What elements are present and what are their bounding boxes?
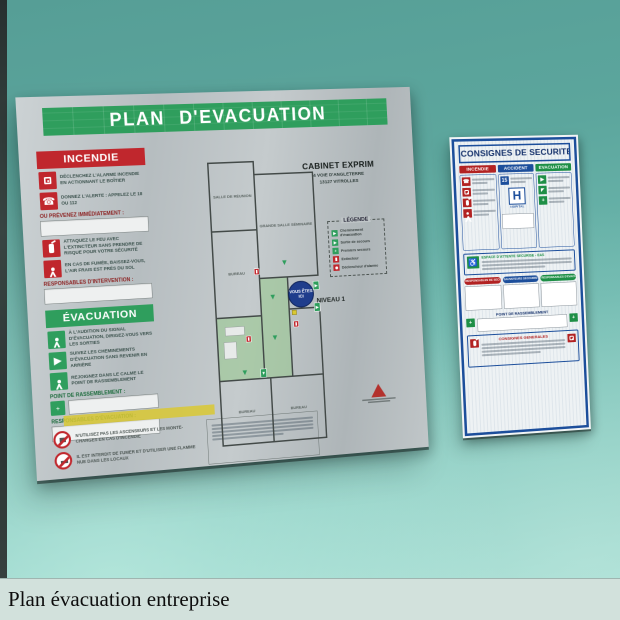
samu-15-icon: 15	[500, 176, 509, 185]
pill-sauveteurs-secouristes: SAUVETEURS SECOURISTES	[503, 275, 539, 283]
exit-sign-icon: ▼	[260, 368, 267, 377]
assembly-walk-icon	[50, 372, 69, 391]
extinguisher-marker-icon	[246, 336, 252, 343]
extinguisher-icon	[463, 198, 472, 207]
column-accident-header: ACCIDENT	[498, 164, 534, 172]
assembly-icon: +	[539, 196, 548, 205]
column-incendie-header: INCENDIE	[459, 165, 496, 173]
building-identity: CABINET EXPRIM 4 VOIE D'ANGLETERRE 13127…	[290, 159, 387, 186]
wheelchair-icon: ♿	[467, 256, 480, 269]
consignes-title: CONSIGNES DE SECURITE	[458, 143, 571, 164]
legend-row: ▶ Sortie de secours	[332, 237, 382, 246]
pill-blank-box	[541, 281, 577, 307]
room-secretariat	[288, 306, 324, 377]
evacuate-icon	[463, 209, 472, 218]
pill-responsables-evacuation: RESPONSABLES D'EVACUATION	[540, 274, 576, 282]
consignes-generales-box: CONSIGNES GENERALES	[467, 329, 580, 367]
photo-scene: PLAN D'EVACUATION INCENDIE DÉCLENCHEZ L'…	[0, 0, 620, 620]
legend-box: LÉGENDE ▶ Cheminement d'évacuation ▶ Sor…	[327, 218, 387, 277]
accident-blank-box	[502, 213, 535, 229]
furniture-desk	[224, 342, 238, 360]
evac-arrow-icon: ▼	[241, 369, 249, 378]
evacuation-item-2-text: SUIVEZ LES CHEMINEMENTS D'ÉVACUATION SAN…	[70, 345, 156, 369]
instructions-sidebar: INCENDIE DÉCLENCHEZ L'ALARME INCENDIE EN…	[36, 148, 160, 442]
column-incendie: INCENDIE ☎	[459, 165, 499, 251]
pill-blank-box	[503, 283, 540, 309]
alarm-button-icon	[462, 188, 471, 197]
column-evacuation: EVACUATION ▶ +	[535, 163, 574, 248]
extinguisher-marker-icon	[254, 268, 260, 275]
stairs-icon	[538, 186, 547, 195]
phone-icon: ☎	[40, 192, 59, 210]
room-bureau-3: BUREAU	[270, 373, 327, 442]
room-bureau-3-label: BUREAU	[290, 405, 307, 411]
room-salle-reunion: SALLE DE RÉUNION	[207, 161, 258, 233]
room-bureau-2-label: BUREAU	[239, 409, 256, 415]
consignes-frame: CONSIGNES DE SECURITE INCENDIE ☎	[451, 137, 589, 436]
eas-box: ♿ ESPACE D'ATTENTE SECURISE - EAS	[463, 249, 576, 275]
alarm-marker-icon	[292, 310, 297, 315]
legend-first-aid-icon: +	[332, 248, 338, 255]
alarm-button-icon	[38, 172, 57, 190]
alarm-button-icon	[567, 334, 576, 343]
extinguisher-icon	[42, 239, 61, 257]
incendie-item-4: EN CAS DE FUMÉE, BAISSEZ-VOUS, L'AIR FRA…	[43, 255, 150, 278]
dark-door-edge	[0, 0, 7, 578]
assembly-point-icon: +	[466, 318, 475, 327]
column-accident: ACCIDENT 15 H HOPITAL	[498, 164, 538, 249]
legend-alarm-icon	[333, 264, 339, 271]
evac-arrow-icon: ▼	[271, 334, 279, 342]
incendie-header: INCENDIE	[36, 148, 145, 169]
exit-sign-icon: ▶	[313, 281, 320, 290]
no-smoking-icon	[54, 451, 72, 470]
exit-man-icon: ▶	[538, 175, 547, 184]
room-bureau-2: BUREAU	[219, 377, 275, 447]
room-salle-reunion-label: SALLE DE RÉUNION	[213, 193, 252, 199]
incendie-item-4-text: EN CAS DE FUMÉE, BAISSEZ-VOUS, L'AIR FRA…	[65, 258, 150, 274]
room-bureau-1-label: BUREAU	[228, 271, 245, 277]
evacuation-item-3-text: REJOIGNEZ DANS LE CALME LE POINT DE RASS…	[71, 369, 156, 387]
incendie-item-3-text: ATTAQUEZ LE FEU AVEC L'EXTINCTEUR SANS P…	[63, 234, 149, 256]
evacuation-signal-icon	[47, 330, 66, 349]
legend-extinguisher-icon	[333, 256, 339, 263]
incendie-item-1-text: DÉCLENCHEZ L'ALARME INCENDIE EN ACTIONNA…	[60, 171, 146, 186]
phone-icon: ☎	[462, 177, 471, 186]
assembly-point-icon: +	[50, 401, 65, 416]
assembly-point-icon: +	[569, 313, 578, 322]
extinguisher-icon	[470, 339, 479, 348]
pill-responsables-securite: RESPONSABLES DE SECURITE	[464, 277, 501, 285]
no-elevator-icon	[53, 430, 71, 449]
furniture-table	[225, 326, 245, 336]
interdiction-item-2-text: IL EST INTERDIT DE FUMER ET D'UTILISER U…	[76, 444, 201, 466]
evac-arrow-icon: ▼	[280, 259, 288, 267]
incendie-item-3: ATTAQUEZ LE FEU AVEC L'EXTINCTEUR SANS P…	[42, 234, 149, 257]
consignes-securite-board: CONSIGNES DE SECURITE INCENDIE ☎	[449, 135, 591, 439]
prevenez-blank-box	[40, 216, 149, 236]
extinguisher-marker-icon	[293, 321, 299, 328]
crawl-under-smoke-icon	[43, 260, 62, 278]
hospital-letter: H	[508, 187, 526, 205]
legend-arrow-icon: ▶	[331, 230, 337, 237]
legend-row: Déclencheur d'alarme	[333, 262, 383, 271]
plan-title-banner: PLAN D'EVACUATION	[42, 98, 388, 136]
hospital-label: HOPITAL	[508, 205, 528, 209]
brand-triangle-icon	[371, 383, 387, 397]
incendie-item-1: DÉCLENCHEZ L'ALARME INCENDIE EN ACTIONNA…	[38, 168, 145, 190]
brand-logo	[357, 382, 401, 404]
legend-title: LÉGENDE	[341, 216, 371, 223]
caption-text: Plan évacuation entreprise	[0, 579, 620, 619]
evacuation-item-1-text: À L'AUDITION DU SIGNAL D'ÉVACUATION, DIR…	[68, 324, 154, 347]
plan-title: PLAN D'EVACUATION	[109, 103, 327, 131]
pill-blank-box	[465, 285, 502, 311]
evac-arrow-icon: ▼	[269, 293, 277, 301]
caption-bar: Plan évacuation entreprise	[0, 578, 620, 620]
evacuation-plan-board: PLAN D'EVACUATION INCENDIE DÉCLENCHEZ L'…	[15, 87, 428, 481]
incendie-item-2-text: DONNEZ L'ALERTE : APPELEZ LE 18 OU 112	[61, 191, 147, 207]
legend-exit-icon: ▶	[332, 239, 338, 246]
incendie-item-2: ☎ DONNEZ L'ALERTE : APPELEZ LE 18 OU 112	[40, 188, 147, 210]
point-rassemblement-row: + POINT DE RASSEMBLEMENT +	[466, 308, 578, 332]
room-grande-salle-label: GRANDE SALLE SÉMINAIRE	[259, 221, 312, 228]
hospital-sign: H HOPITAL	[507, 187, 528, 209]
column-evacuation-header: EVACUATION	[535, 163, 571, 171]
evacuation-route-icon: ▶	[49, 351, 68, 370]
legend-row: ▶ Cheminement d'évacuation	[331, 226, 381, 237]
